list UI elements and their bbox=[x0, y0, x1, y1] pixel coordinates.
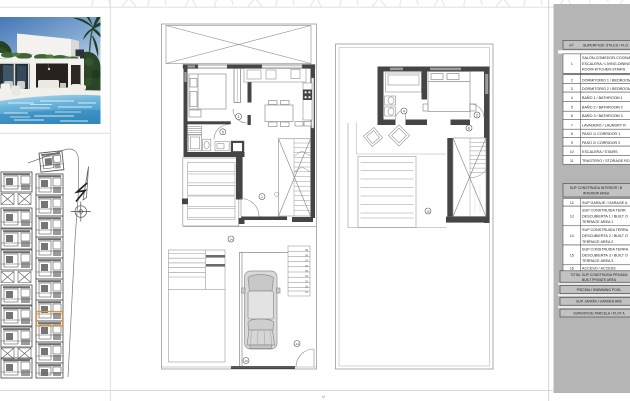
svg-text:BAÑO 3 / BATHROOM 3: BAÑO 3 / BATHROOM 3 bbox=[582, 113, 623, 118]
svg-text:TOTAL SUP CONSTRUIDA PRIVADA: TOTAL SUP CONSTRUIDA PRIVADA bbox=[570, 273, 628, 277]
svg-text:11: 11 bbox=[570, 159, 574, 163]
svg-text:16: 16 bbox=[570, 267, 574, 271]
svg-text:1: 1 bbox=[571, 62, 573, 66]
svg-text:LAVADERO / LAUNDRY R: LAVADERO / LAUNDRY R bbox=[582, 124, 626, 128]
svg-text:SUP CONSTRUIDA TERR: SUP CONSTRUIDA TERR bbox=[582, 209, 626, 213]
svg-text:13: 13 bbox=[570, 215, 574, 219]
svg-text:ESCALERA / LIVING-DINING: ESCALERA / LIVING-DINING bbox=[582, 62, 630, 66]
svg-text:7: 7 bbox=[571, 124, 573, 128]
svg-text:SUP CONSTRUIDA TERRA: SUP CONSTRUIDA TERRA bbox=[582, 228, 629, 232]
svg-text:5: 5 bbox=[222, 130, 224, 134]
svg-text:8: 8 bbox=[468, 127, 470, 131]
svg-text:SUPERFICIE PARCELA / PLOT A: SUPERFICIE PARCELA / PLOT A bbox=[573, 311, 625, 315]
svg-text:DESCUBIERTA 2 / BUILT O: DESCUBIERTA 2 / BUILT O bbox=[582, 234, 628, 238]
svg-text:15: 15 bbox=[570, 254, 574, 258]
svg-text:BAÑO 1 / BATHROOM 1: BAÑO 1 / BATHROOM 1 bbox=[582, 95, 623, 100]
svg-text:TERRACE AREA 2: TERRACE AREA 2 bbox=[582, 240, 613, 244]
svg-text:PASO 2/ CORRIDOR 2: PASO 2/ CORRIDOR 2 bbox=[582, 141, 620, 145]
svg-text:4: 4 bbox=[403, 110, 405, 114]
svg-text:10: 10 bbox=[570, 150, 574, 154]
svg-text:M: M bbox=[322, 395, 325, 399]
svg-text:SUP. JARDÍN / GARDEN ARE: SUP. JARDÍN / GARDEN ARE bbox=[576, 300, 622, 304]
svg-text:TERRACE AREA 3: TERRACE AREA 3 bbox=[582, 259, 613, 263]
svg-text:2: 2 bbox=[571, 79, 573, 83]
svg-text:DORMITORIO 2 / BEDROOM 2: DORMITORIO 2 / BEDROOM 2 bbox=[582, 87, 630, 91]
svg-text:16: 16 bbox=[426, 210, 430, 214]
svg-text:SUP CONSTRUIDA TERRA: SUP CONSTRUIDA TERRA bbox=[582, 248, 629, 252]
svg-text:4: 4 bbox=[571, 96, 573, 100]
svg-text:14: 14 bbox=[570, 234, 574, 238]
svg-text:ACCESO / ACCESS: ACCESO / ACCESS bbox=[582, 267, 616, 271]
svg-text:SUPERFICIE ÚTILES / FLO: SUPERFICIE ÚTILES / FLO bbox=[583, 42, 628, 47]
svg-text:1: 1 bbox=[261, 195, 263, 199]
svg-text:9: 9 bbox=[571, 141, 573, 145]
svg-text:12: 12 bbox=[570, 201, 574, 205]
svg-text:5: 5 bbox=[571, 106, 573, 110]
svg-text:DESCUBIERTA 1 / BUILT O: DESCUBIERTA 1 / BUILT O bbox=[582, 214, 628, 218]
svg-text:DORMITORIO 1 / BEDROOM 1: DORMITORIO 1 / BEDROOM 1 bbox=[582, 79, 630, 83]
svg-text:BUILT PRIVATE AREA: BUILT PRIVATE AREA bbox=[582, 278, 617, 282]
svg-text:14: 14 bbox=[295, 342, 299, 346]
svg-text:TRASTERO / STORAGE RO: TRASTERO / STORAGE RO bbox=[582, 159, 630, 163]
svg-text:3: 3 bbox=[571, 87, 573, 91]
svg-text:2: 2 bbox=[476, 114, 478, 118]
svg-text:SUP CONSTRUIDA INTERIOR / B: SUP CONSTRUIDA INTERIOR / B bbox=[570, 186, 623, 190]
svg-text:TERRACE AREA 1: TERRACE AREA 1 bbox=[582, 220, 613, 224]
svg-text:PISCINA / SWIMMING POOL: PISCINA / SWIMMING POOL bbox=[577, 288, 622, 292]
svg-text:ROOM-KITCHEN-STAIRS: ROOM-KITCHEN-STAIRS bbox=[582, 68, 626, 72]
svg-text:SALÓN-COMEDOR-COCINA-: SALÓN-COMEDOR-COCINA- bbox=[582, 55, 630, 60]
svg-text:PASO 1/ CORRIDOR 1: PASO 1/ CORRIDOR 1 bbox=[582, 132, 620, 136]
svg-text:BAÑO 2 / BATHROOM 2: BAÑO 2 / BATHROOM 2 bbox=[582, 105, 623, 110]
svg-text:DESCUBIERTA 3 / BUILT O: DESCUBIERTA 3 / BUILT O bbox=[582, 253, 628, 257]
svg-text:6: 6 bbox=[571, 114, 573, 118]
svg-text:14: 14 bbox=[229, 238, 233, 242]
svg-text:INTERIOR AREA: INTERIOR AREA bbox=[583, 192, 610, 196]
svg-text:3: 3 bbox=[238, 115, 240, 119]
svg-text:13: 13 bbox=[244, 359, 248, 363]
svg-text:SUP GARAJE / GARAGE A: SUP GARAJE / GARAGE A bbox=[582, 201, 628, 205]
svg-text:8: 8 bbox=[571, 132, 573, 136]
svg-text:ESCALERA / STAIRS: ESCALERA / STAIRS bbox=[582, 150, 618, 154]
